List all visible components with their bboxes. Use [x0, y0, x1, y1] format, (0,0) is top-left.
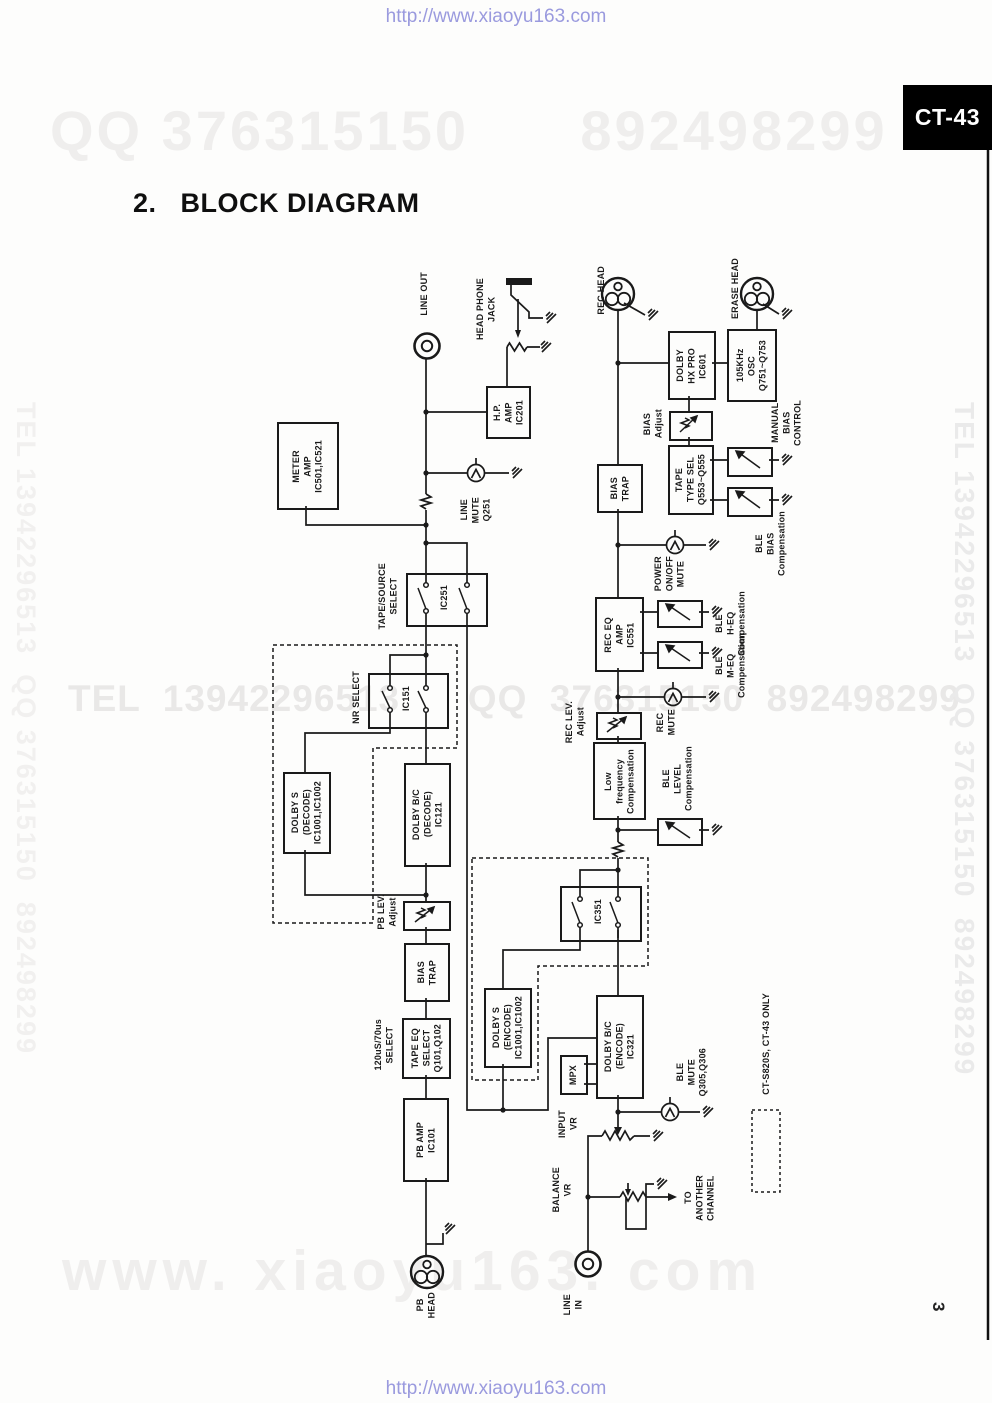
ground-icon [546, 312, 556, 323]
label-ble-bias-comp: BLE BIAS Compensation [752, 508, 790, 578]
ground-icon [712, 824, 722, 835]
label-manual-bias-control: MANUAL BIAS CONTROL [770, 398, 804, 448]
label-ic151: IC151 [399, 679, 415, 719]
line-in-jack-icon [576, 1252, 601, 1277]
ground-icon [709, 539, 719, 550]
model-badge: CT-43 [903, 85, 992, 150]
block-mpx: MPX [560, 1055, 588, 1095]
block-dolby-s-encode: DOLBY S (ENCODE) IC1001,IC1002 [484, 988, 532, 1068]
block-pb-lev-adjust [403, 901, 451, 931]
block-tape-eq-select: TAPE EQ SELECT Q101,Q102 [402, 1018, 451, 1079]
block-rec-eq-amp: REC EQ AMP IC551 [595, 597, 644, 672]
block-rec-lev-adjust [596, 712, 642, 740]
label-rec-lev-adjust: REC LEV. Adjust [561, 696, 589, 748]
switch-symbols [382, 583, 620, 928]
pb-head-icon [411, 1256, 443, 1288]
ground-icon [703, 1106, 713, 1117]
label-input-vr: INPUT VR [552, 1102, 584, 1146]
block-meter-amp: METER AMP IC501,IC521 [277, 422, 339, 510]
block-dolby-bc-decode: DOLBY B/C (DECODE) IC121 [404, 763, 451, 867]
label-head-phone-jack: HEAD PHONE JACK [472, 274, 500, 344]
block-dolby-bc-encode: DOLBY B/C (ENCODE) IC321 [596, 995, 644, 1099]
label-only-note: CT-S820S, CT-43 ONLY [754, 982, 780, 1106]
junction-dots [423, 360, 620, 1199]
label-line-mute: LINE MUTE Q251 [458, 486, 494, 534]
block-dolby-hx-pro: DOLBY HX PRO IC601 [668, 331, 716, 400]
ground-icon [782, 454, 792, 465]
block-bias-trap-rec: BIAS TRAP [597, 464, 643, 513]
block-ble-level-switch [657, 818, 703, 846]
label-ic251: IC251 [437, 579, 453, 617]
label-ble-meq-comp: BLE M-EQ Compensation [712, 626, 750, 704]
ground-icon [541, 341, 551, 352]
ground-icon [445, 1223, 455, 1234]
label-balance-vr: BALANCE VR [546, 1162, 578, 1218]
ground-icon [653, 1130, 663, 1141]
page-number: 3 [928, 1302, 948, 1311]
block-manual-bias-switch-1 [727, 447, 773, 477]
block-bias-trap-pb: BIAS TRAP [404, 943, 450, 1002]
ground-icon [512, 467, 522, 478]
section-title: 2. BLOCK DIAGRAM [133, 188, 420, 219]
label-tape-source-select: TAPE/SOURCE SELECT [374, 554, 402, 638]
block-bias-adjust [669, 411, 713, 441]
label-bias-adjust: BIAS Adjust [639, 402, 667, 446]
label-erase-head: ERASE HEAD [724, 256, 748, 322]
label-pb-head: PB HEAD [410, 1286, 442, 1324]
label-rec-head: REC HEAD [590, 260, 614, 320]
line-out-jack-icon [415, 334, 440, 359]
label-120us-select: 120uS/70us SELECT [369, 1015, 399, 1075]
label-ble-level-comp: BLE LEVEL Compensation [658, 742, 698, 814]
block-ble-meq-switch [657, 641, 703, 669]
ground-icon [782, 308, 792, 319]
block-ble-heq-switch [657, 600, 703, 628]
label-nr-select: NR SELECT [344, 666, 370, 728]
block-low-freq-comp: Low frequency Compensation [593, 742, 646, 820]
block-pb-amp: PB AMP IC101 [403, 1098, 449, 1182]
label-pb-lev-adjust: PB LEV. Adjust [373, 888, 401, 936]
label-line-out: LINE OUT [412, 264, 438, 324]
ground-icon [782, 494, 792, 505]
mute-transistor-icon [468, 458, 485, 482]
block-hp-amp: H.P. AMP IC201 [486, 386, 531, 439]
label-line-in: LINE IN [558, 1286, 588, 1324]
label-ble-mute: BLE MUTE Q305,Q306 [672, 1038, 712, 1106]
label-ic351: IC351 [591, 892, 607, 932]
ground-icon [657, 1178, 667, 1189]
block-tape-type-sel: TAPE TYPE SEL Q553~Q555 [668, 445, 714, 515]
ground-icon [648, 309, 658, 320]
scanned-manual-page: QQ 376315150 892498299 TEL 13942296513 Q… [0, 0, 992, 1403]
label-to-another-channel: TO ANOTHER CHANNEL [680, 1168, 720, 1228]
footer-url: http://www.xiaoyu163.com [0, 1378, 992, 1400]
label-rec-mute: REC MUTE [650, 702, 682, 742]
block-105khz-osc: 105KHz OSC Q751~Q753 [727, 329, 777, 402]
header-url: http://www.xiaoyu163.com [0, 6, 992, 28]
block-dolby-s-decode: DOLBY S (DECODE) IC1001,IC1002 [283, 772, 331, 854]
label-power-mute: POWER ON/OFF MUTE [650, 549, 690, 599]
